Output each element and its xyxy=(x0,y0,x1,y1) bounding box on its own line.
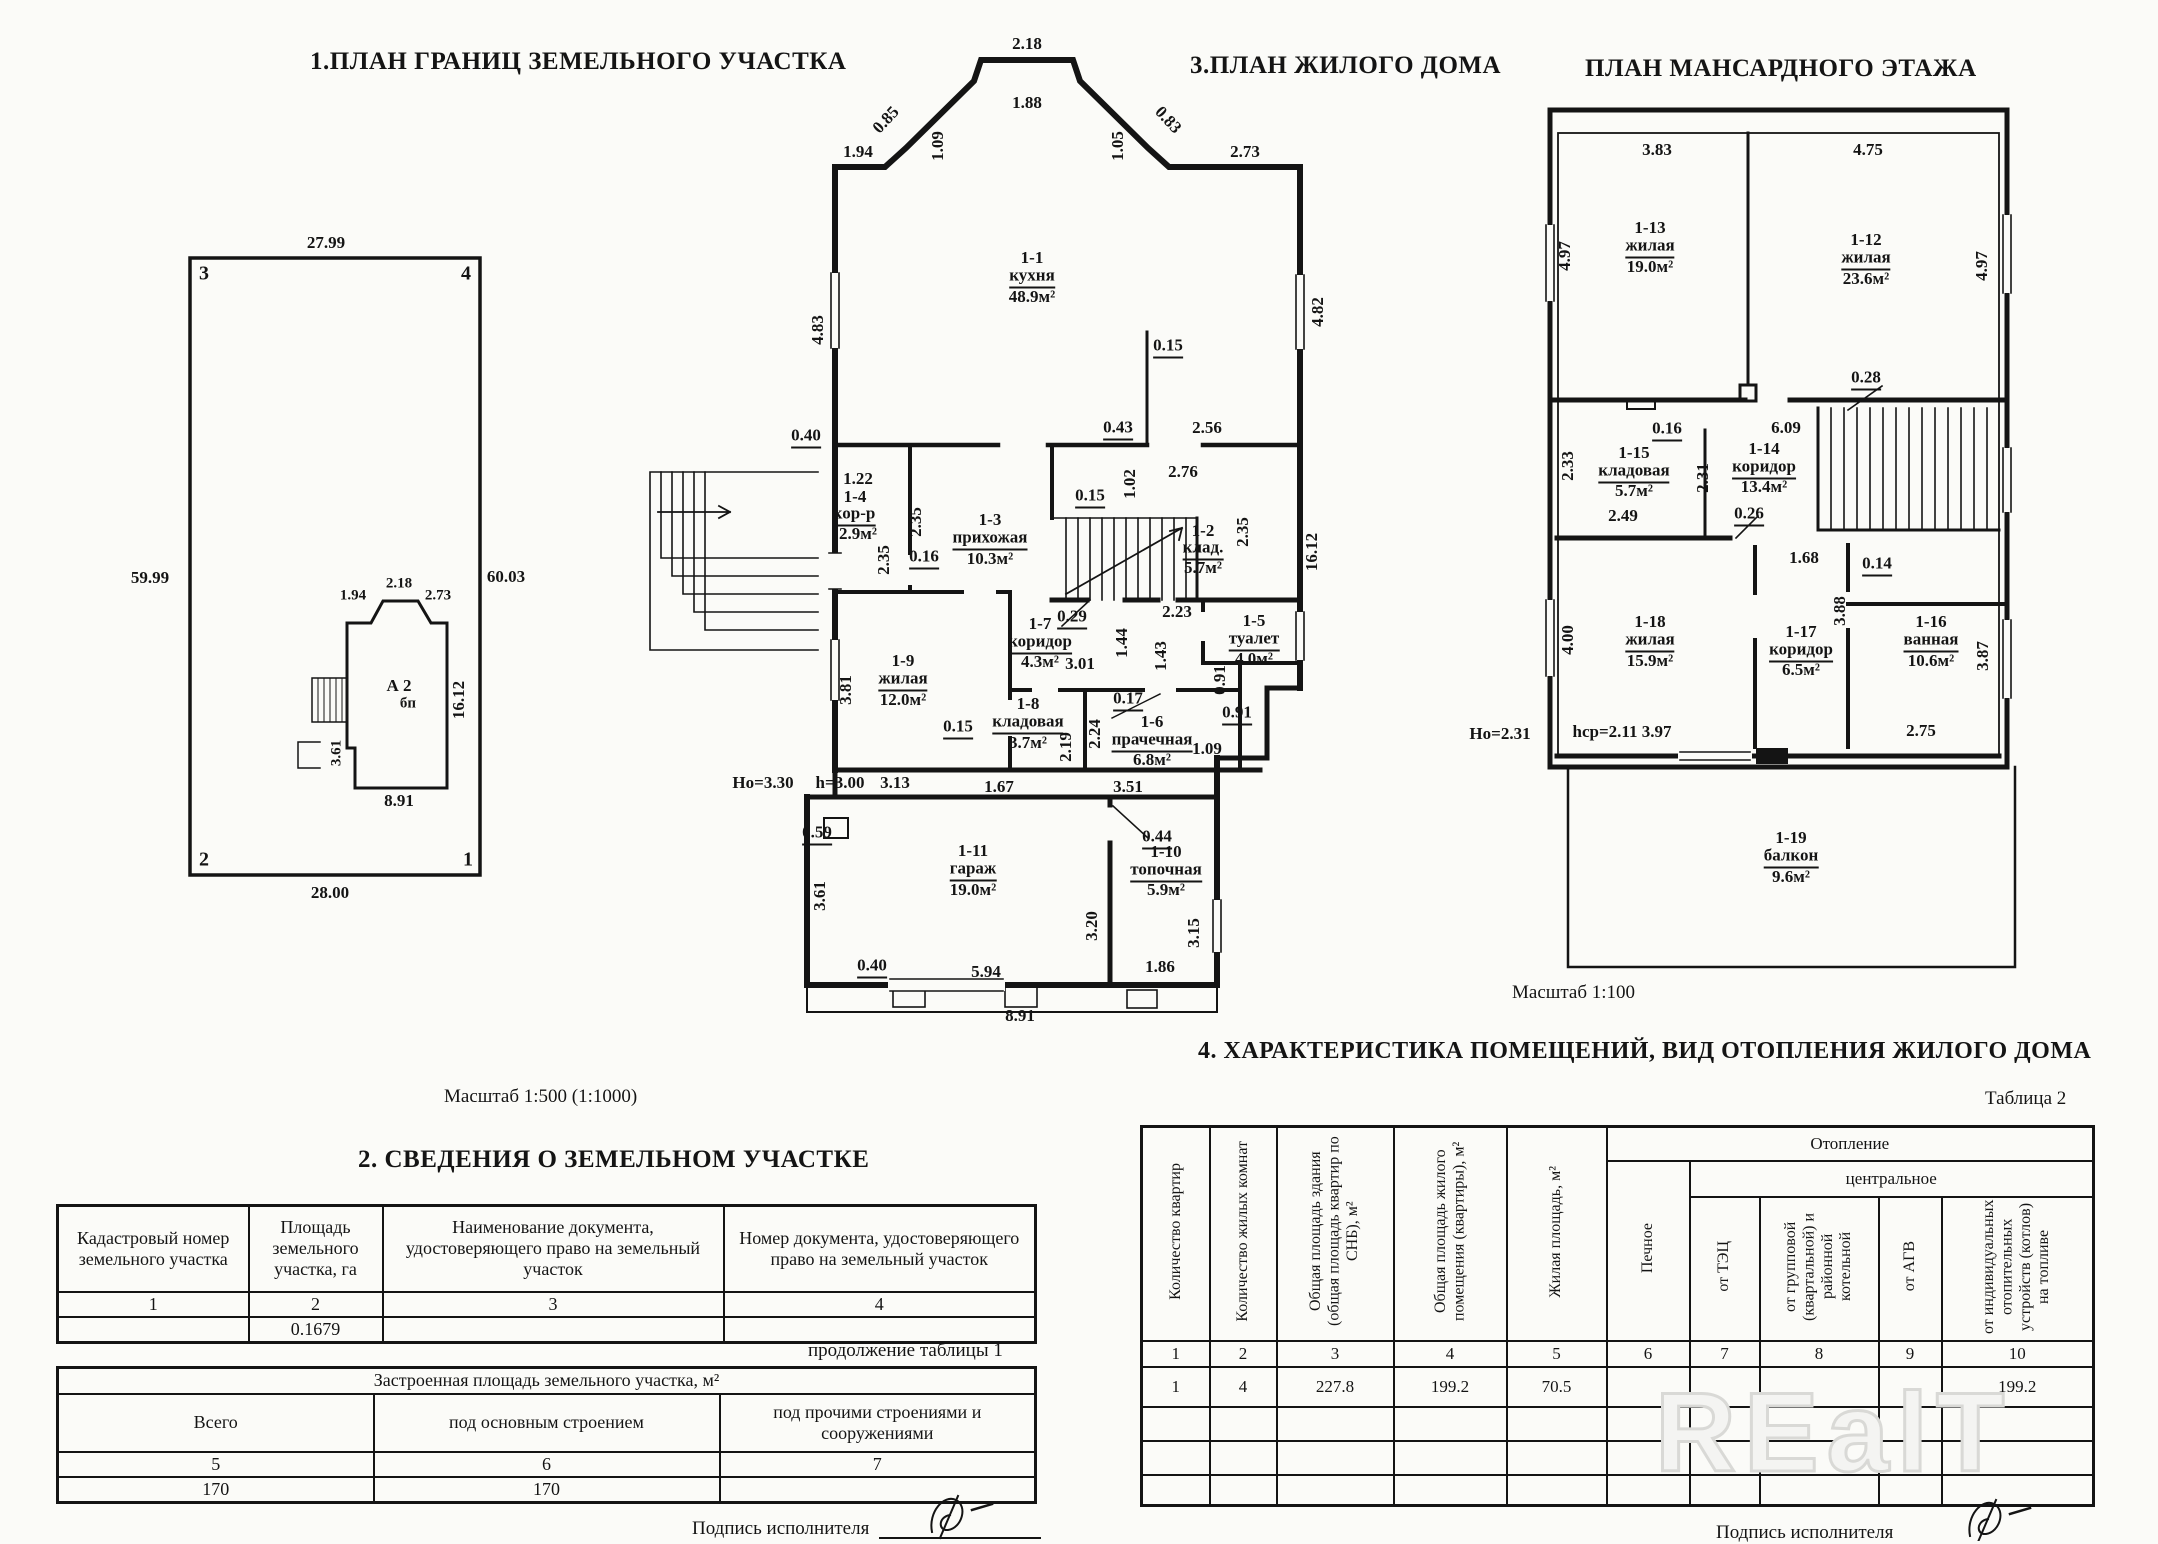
table-cell: под основным строением xyxy=(374,1394,720,1452)
table-cell: Номер документа, удостоверяющего право н… xyxy=(724,1206,1036,1292)
table-cell xyxy=(1277,1441,1394,1475)
technical-passport-page: { "titles": { "plot": "1.ПЛАН ГРАНИЦ ЗЕМ… xyxy=(0,0,2158,1541)
table-cell: 1 xyxy=(58,1292,249,1317)
attic-plan-title: ПЛАН МАНСАРДНОГО ЭТАЖА xyxy=(1585,55,1977,83)
table-numbering-row: 5 6 7 xyxy=(58,1452,1036,1477)
house-plan-title: 3.ПЛАН ЖИЛОГО ДОМА xyxy=(1190,52,1501,80)
table-cell: от индивидуальных отопительных устройств… xyxy=(1942,1197,2094,1341)
table-cell xyxy=(1142,1407,1210,1441)
plot-scale-note: Масштаб 1:500 (1:1000) xyxy=(444,1086,637,1108)
table-cell xyxy=(1394,1475,1507,1505)
table-cell xyxy=(1394,1407,1507,1441)
table-cell: 70.5 xyxy=(1507,1367,1607,1407)
table-cell: Общая площадь здания (общая площадь квар… xyxy=(1277,1127,1394,1342)
table-cell xyxy=(1210,1441,1277,1475)
plot-plan-title: 1.ПЛАН ГРАНИЦ ЗЕМЕЛЬНОГО УЧАСТКА xyxy=(310,48,846,76)
land-info-table: Кадастровый номер земельного участка Пло… xyxy=(56,1204,1037,1344)
table-cell: Количество жилых комнат xyxy=(1210,1127,1277,1342)
table-cell: 10 xyxy=(1942,1341,2094,1367)
table-cell: 7 xyxy=(720,1452,1036,1477)
table-cell: Застроенная площадь земельного участка, … xyxy=(58,1368,1036,1394)
table-header-row: Всего под основным строением под прочими… xyxy=(58,1394,1036,1452)
table-cell: от АГВ xyxy=(1879,1197,1942,1341)
table-cell: 3 xyxy=(1277,1341,1394,1367)
table-cell: 170 xyxy=(58,1477,374,1503)
table-cell xyxy=(1277,1475,1394,1505)
signature-label-left: Подпись исполнителя xyxy=(692,1518,869,1540)
table-cell: 8 xyxy=(1760,1341,1879,1367)
table-cell: 0.1679 xyxy=(249,1317,383,1343)
table-cell xyxy=(1277,1407,1394,1441)
table-cell xyxy=(383,1317,724,1343)
table-row: 170 170 xyxy=(58,1477,1036,1503)
table-cell: Печное xyxy=(1607,1161,1690,1342)
table-cell: 6 xyxy=(374,1452,720,1477)
table-title-row: Застроенная площадь земельного участка, … xyxy=(58,1368,1036,1394)
table-cell: Наименование документа, удостоверяющего … xyxy=(383,1206,724,1292)
table-cell: 9 xyxy=(1879,1341,1942,1367)
attic-plan-linework xyxy=(1543,110,2015,967)
land-info-title: 2. СВЕДЕНИЯ О ЗЕМЕЛЬНОМ УЧАСТКЕ xyxy=(358,1146,869,1174)
built-area-table: Застроенная площадь земельного участка, … xyxy=(56,1366,1037,1504)
table-cell: Жилая площадь, м² xyxy=(1507,1127,1607,1342)
table-cell: 227.8 xyxy=(1277,1367,1394,1407)
table-cell: под прочими строениями и сооружениями xyxy=(720,1394,1036,1452)
table-cell xyxy=(1507,1441,1607,1475)
table-cell: от групповой (квартальной) и районной ко… xyxy=(1760,1197,1879,1341)
table-cell: Отопление xyxy=(1607,1127,2094,1161)
rooms-table-title: 4. ХАРАКТЕРИСТИКА ПОМЕЩЕНИЙ, ВИД ОТОПЛЕН… xyxy=(1198,1038,2091,1065)
table-cell xyxy=(1210,1475,1277,1505)
plot-plan-linework xyxy=(190,258,480,875)
table-cell xyxy=(720,1477,1036,1503)
table-header-row: Кадастровый номер земельного участка Пло… xyxy=(58,1206,1036,1292)
table-cell xyxy=(1507,1475,1607,1505)
table-cell: 3 xyxy=(383,1292,724,1317)
table-numbering-row: 12 34 56 78 910 xyxy=(1142,1341,2094,1367)
table-cell: Кадастровый номер земельного участка xyxy=(58,1206,249,1292)
table-cell: 1 xyxy=(1142,1341,1210,1367)
table-cell: 5 xyxy=(1507,1341,1607,1367)
table-cell xyxy=(58,1317,249,1343)
table-cell: 5 xyxy=(58,1452,374,1477)
table-cell: 7 xyxy=(1690,1341,1760,1367)
table-cell xyxy=(1394,1441,1507,1475)
table-cell: 2 xyxy=(1210,1341,1277,1367)
table-cell xyxy=(724,1317,1036,1343)
realt-watermark: REalT xyxy=(1655,1368,2012,1497)
table-cell: Общая площадь жилого помещения (квартиры… xyxy=(1394,1127,1507,1342)
table-cell: 4 xyxy=(724,1292,1036,1317)
table-cell: Площадь земельного участка, га xyxy=(249,1206,383,1292)
table-cell: 4 xyxy=(1394,1341,1507,1367)
table-cell: 4 xyxy=(1210,1367,1277,1407)
table-cell: центральное xyxy=(1690,1161,2094,1198)
table-cell xyxy=(1210,1407,1277,1441)
table-cell: 6 xyxy=(1607,1341,1690,1367)
table-cell: от ТЭЦ xyxy=(1690,1197,1760,1341)
table-cell: 170 xyxy=(374,1477,720,1503)
table-row: 0.1679 xyxy=(58,1317,1036,1343)
table-cell xyxy=(1507,1407,1607,1441)
table-cell: 199.2 xyxy=(1394,1367,1507,1407)
table2-note: Таблица 2 xyxy=(1985,1088,2066,1110)
table-cell: Всего xyxy=(58,1394,374,1452)
table-cell xyxy=(1142,1475,1210,1505)
table-cell: Количество квартир xyxy=(1142,1127,1210,1342)
table-cell xyxy=(1142,1441,1210,1475)
attic-scale-note: Масштаб 1:100 xyxy=(1512,982,1635,1004)
table-numbering-row: 1 2 3 4 xyxy=(58,1292,1036,1317)
table-cell: 2 xyxy=(249,1292,383,1317)
table-group-header-row: Количество квартир Количество жилых комн… xyxy=(1142,1127,2094,1161)
table-cell: 1 xyxy=(1142,1367,1210,1407)
house-plan-linework xyxy=(650,60,1307,1012)
